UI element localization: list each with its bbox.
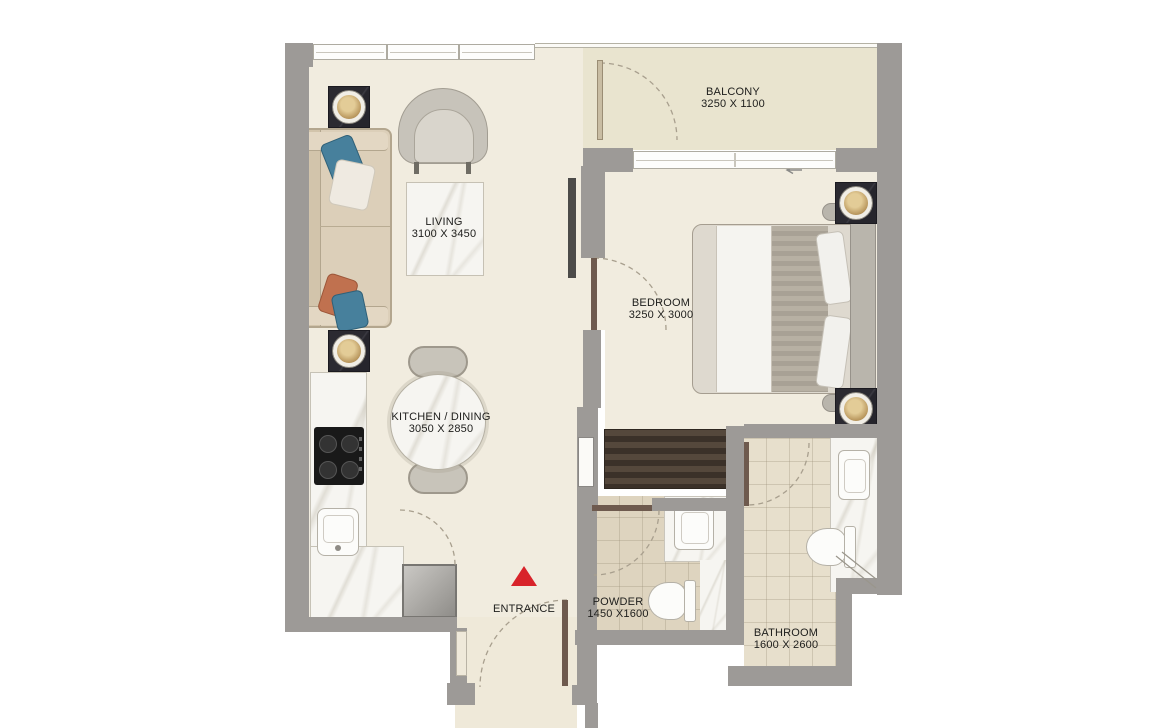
bathroom-sink [838, 450, 870, 500]
sofa-seat-seam [320, 226, 390, 227]
wardrobe [604, 429, 727, 489]
wall-powder-bottom [575, 630, 732, 645]
bathroom-toilet-bowl [806, 528, 848, 566]
burner [341, 435, 359, 453]
powder-sink-basin [681, 512, 709, 544]
wall-powder-top [652, 498, 728, 511]
room-name: BALCONY [706, 86, 760, 98]
bedroom-balcony-window [633, 151, 836, 169]
nightstand-top [835, 182, 877, 224]
powder-toilet-bowl [648, 582, 688, 620]
table-lamp-icon [840, 393, 872, 425]
room-label-powder: POWDER 1450 X1600 [587, 596, 648, 620]
table-lamp-icon [333, 335, 365, 367]
room-name: BEDROOM [632, 297, 690, 309]
armchair-leg-left [414, 162, 419, 174]
living-window-3 [459, 44, 535, 60]
room-label-bedroom: BEDROOM 3250 X 3000 [629, 297, 694, 321]
room-name: POWDER [593, 596, 644, 608]
cooktop-knobs [359, 437, 362, 477]
wall-left [285, 58, 309, 632]
bed-sheet [716, 226, 772, 392]
room-label-balcony: BALCONY 3250 X 1100 [701, 86, 765, 110]
living-side-table-top [328, 86, 370, 128]
service-shaft [578, 437, 594, 487]
bathroom-sink-basin [844, 459, 866, 493]
kitchen-faucet-icon [335, 545, 341, 551]
entrance-corridor-floor [455, 617, 577, 728]
armchair-leg-right [466, 162, 471, 174]
living-window-2 [387, 44, 459, 60]
powder-marble-strip [700, 560, 728, 632]
room-dims: 3250 X 1100 [701, 98, 765, 110]
armchair-seat [414, 109, 474, 163]
wall-corridor-right-step [572, 685, 597, 705]
wall-powder-left [577, 495, 597, 688]
room-dims: 1600 X 2600 [754, 639, 819, 651]
wall-balcony-bedroom-right [836, 148, 877, 172]
burner [341, 461, 359, 479]
powder-toilet-tank [684, 580, 696, 622]
wall-bedroom-lower [583, 330, 601, 408]
powder-door-leaf [592, 505, 652, 511]
washing-machine [402, 564, 457, 618]
table-lamp-icon [333, 91, 365, 123]
balcony-railing [535, 43, 877, 48]
room-name: LIVING [425, 216, 462, 228]
room-label-kitchen-dining: KITCHEN / DINING 3050 X 2850 [391, 411, 490, 435]
bathroom-toilet-tank [844, 526, 856, 568]
room-name: BATHROOM [754, 627, 818, 639]
room-label-living: LIVING 3100 X 3450 [412, 216, 477, 240]
room-dims: 3050 X 2850 [409, 423, 474, 435]
living-window-1 [313, 44, 387, 60]
wall-corridor-left-foot [447, 683, 475, 705]
wall-right-lower [836, 590, 852, 672]
bedroom-door-leaf [591, 258, 597, 330]
living-side-table-bottom [328, 330, 370, 372]
room-label-bathroom: BATHROOM 1600 X 2600 [754, 627, 819, 651]
window-mullion [734, 153, 736, 167]
bed-headboard [850, 208, 876, 408]
table-lamp-icon [840, 187, 872, 219]
wall-corridor-right-lower [585, 703, 598, 728]
entrance-triangle-icon [511, 566, 537, 586]
wall-living-bedroom [581, 166, 605, 258]
wall-wardrobe-right [726, 426, 744, 645]
room-dims: 1450 X1600 [587, 608, 648, 620]
entrance-door-leaf [562, 600, 568, 686]
wall-bathroom-bottom [728, 666, 852, 686]
wall-bathroom-top [744, 424, 877, 438]
room-dims: 3100 X 3450 [412, 228, 477, 240]
room-name: ENTRANCE [493, 603, 555, 615]
kitchen-counter-bottom [310, 546, 404, 620]
room-label-entrance: ENTRANCE [493, 603, 555, 615]
floorplan-page: { "palette": { "wall": "#9d9a97", "floor… [0, 0, 1152, 728]
wall-right [877, 43, 902, 595]
tv-panel [568, 178, 576, 278]
entrance-door-niche [456, 631, 467, 676]
burner [319, 435, 337, 453]
kitchen-sink-basin [323, 515, 354, 543]
balcony-door-leaf [597, 60, 603, 140]
kitchen-sink [317, 508, 359, 556]
room-dims: 3250 X 3000 [629, 309, 694, 321]
wall-bottom-left [285, 617, 457, 632]
burner [319, 461, 337, 479]
cooktop [314, 427, 364, 485]
room-name: KITCHEN / DINING [391, 411, 490, 423]
bathroom-door-leaf [744, 442, 749, 506]
